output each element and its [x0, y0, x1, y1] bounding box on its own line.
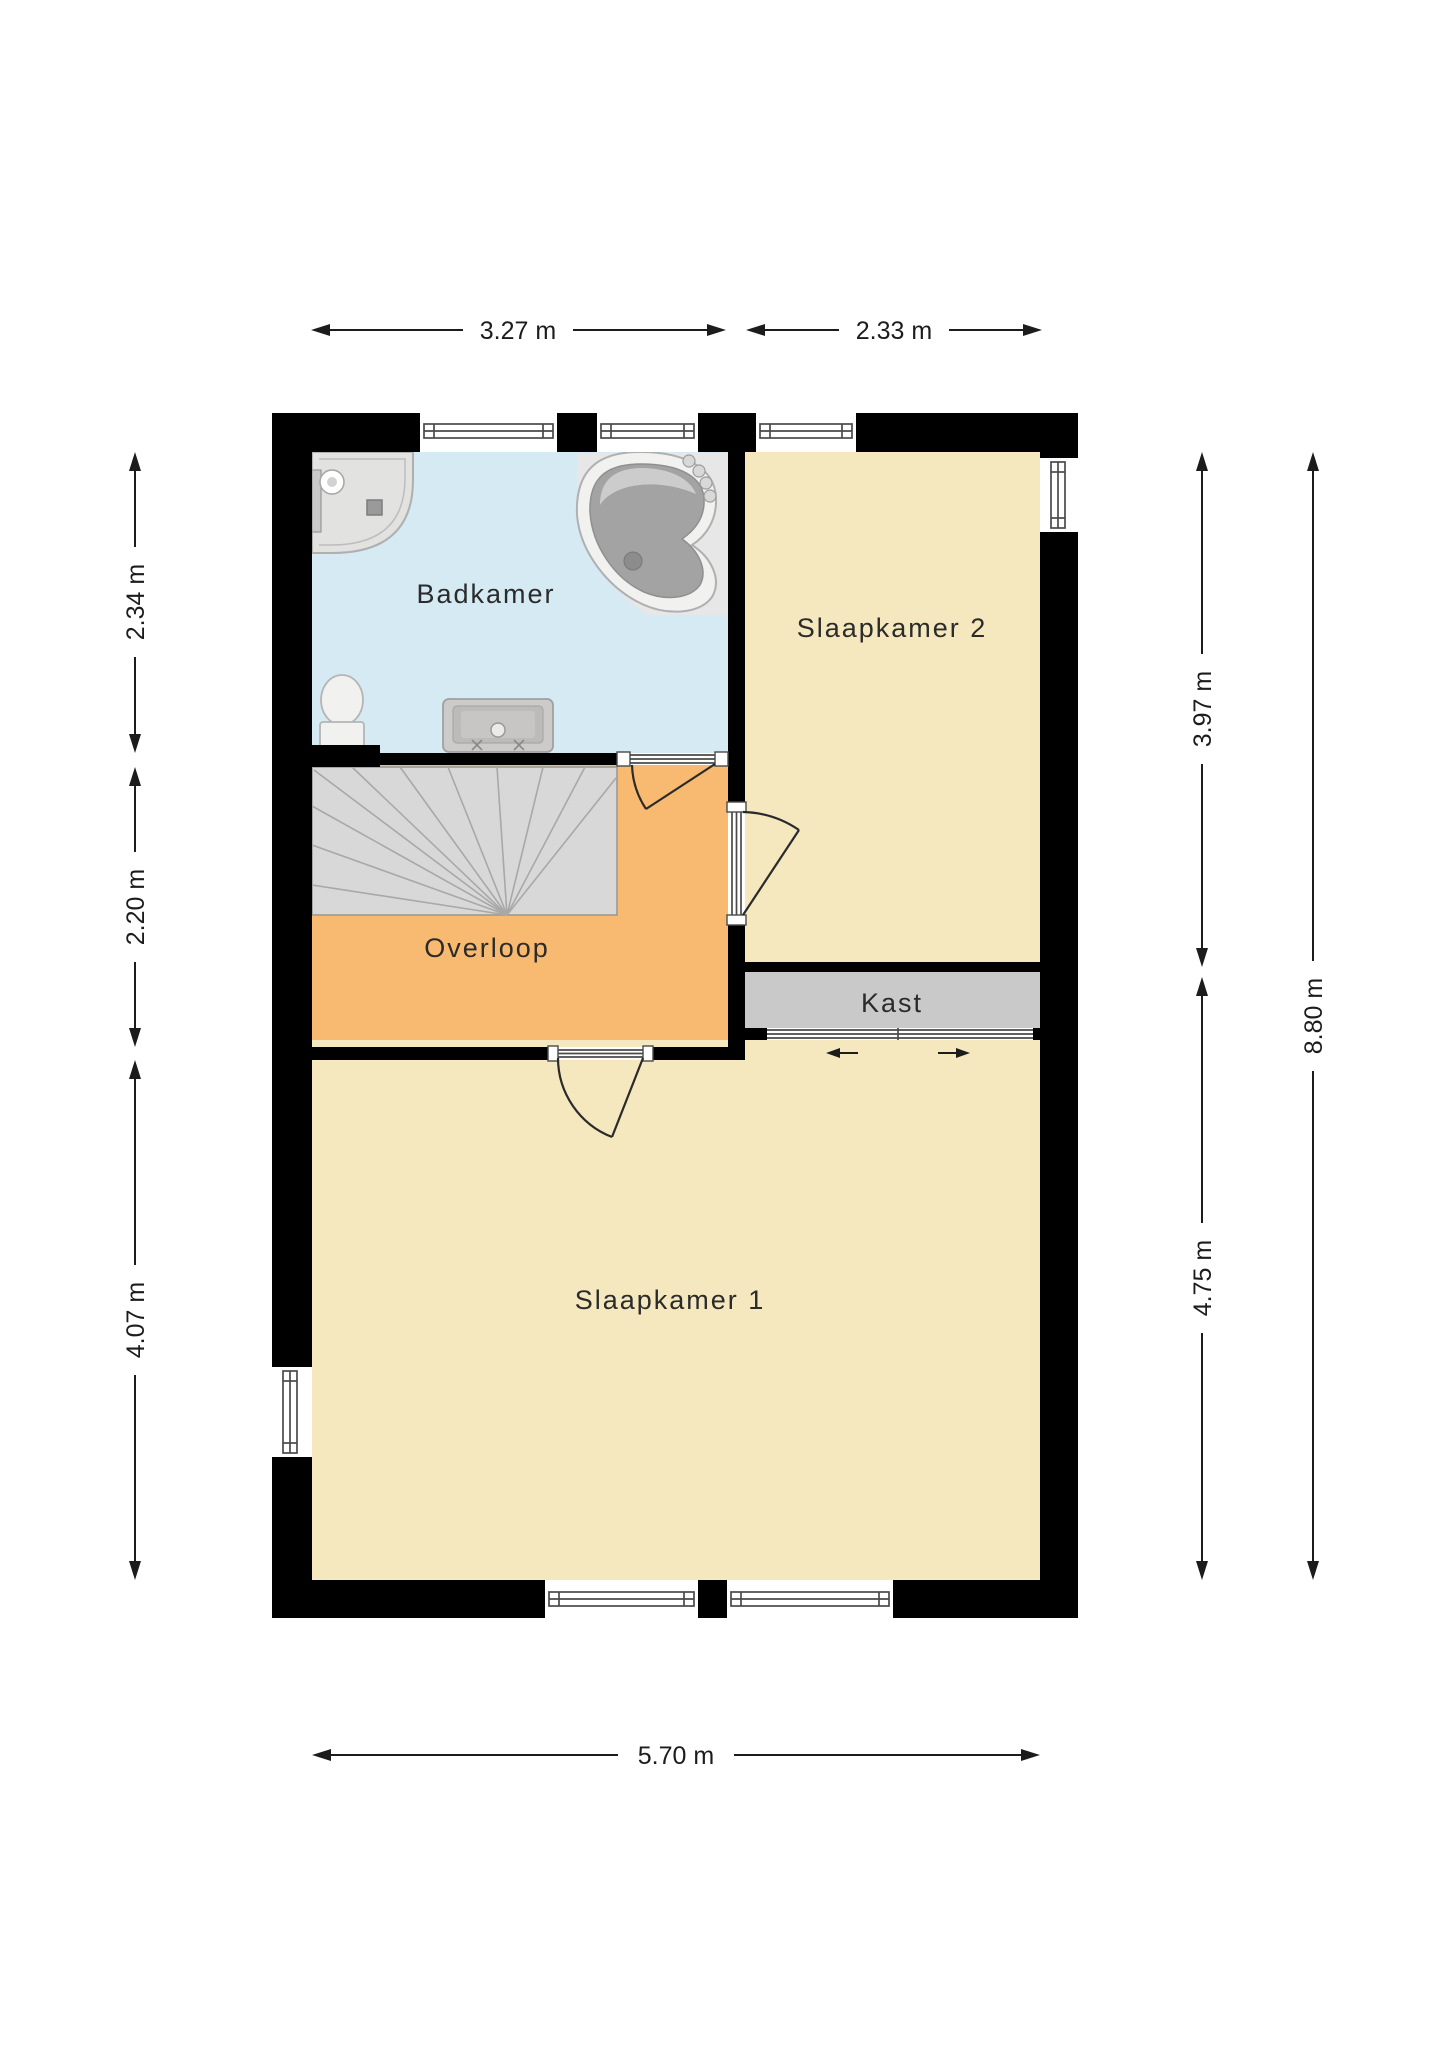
dim-label: 2.33 m [856, 317, 932, 345]
winder-stairs [312, 767, 617, 915]
wall-stub [312, 745, 380, 767]
sink-faucet [491, 723, 505, 737]
dim-label: 8.80 m [1300, 978, 1328, 1054]
dim-label: 5.70 m [638, 1742, 714, 1770]
dim-label: 2.34 m [122, 564, 150, 640]
kast-track-block-right [1033, 1028, 1040, 1040]
wall-overloop-slaapkamer1 [312, 1047, 745, 1060]
slaapkamer2-floor [745, 452, 1040, 962]
dim-right-bottom: 4.75 m [1189, 977, 1217, 1580]
kast-track-block-left [745, 1028, 767, 1040]
dim-left-bottom: 4.07 m [122, 1060, 150, 1580]
sink-vanity [443, 699, 553, 752]
wall-vertical-center [728, 452, 745, 1060]
slaapkamer2-label: Slaapkamer 2 [797, 613, 988, 643]
floorplan-canvas: Badkamer Slaapkamer 2 Overloop Kast Slaa… [0, 0, 1448, 2048]
dim-label: 4.07 m [122, 1282, 150, 1358]
dim-right-top: 3.97 m [1189, 452, 1217, 967]
wall-slaapkamer2-kast [745, 962, 1040, 972]
toilet [320, 675, 364, 750]
shower-drain [367, 500, 382, 515]
dim-label: 2.20 m [122, 869, 150, 945]
dim-label: 4.75 m [1189, 1240, 1217, 1316]
wall-right [1040, 413, 1078, 1618]
dim-label: 3.97 m [1189, 671, 1217, 747]
dim-top-right: 2.33 m [746, 317, 1042, 345]
bathtub-drain [624, 552, 642, 570]
overloop-label: Overloop [424, 933, 550, 963]
shower-head-center [327, 477, 337, 487]
dim-left-top: 2.34 m [122, 452, 150, 753]
dim-right-total: 8.80 m [1300, 452, 1328, 1580]
kast-label: Kast [861, 988, 923, 1018]
badkamer-label: Badkamer [416, 579, 555, 609]
dim-left-middle: 2.20 m [122, 767, 150, 1047]
dim-bottom: 5.70 m [312, 1742, 1040, 1770]
floorplan-page: Badkamer Slaapkamer 2 Overloop Kast Slaa… [0, 0, 1448, 2048]
slaapkamer1-label: Slaapkamer 1 [575, 1285, 766, 1315]
dim-top-left: 3.27 m [311, 317, 726, 345]
dim-label: 3.27 m [480, 317, 556, 345]
